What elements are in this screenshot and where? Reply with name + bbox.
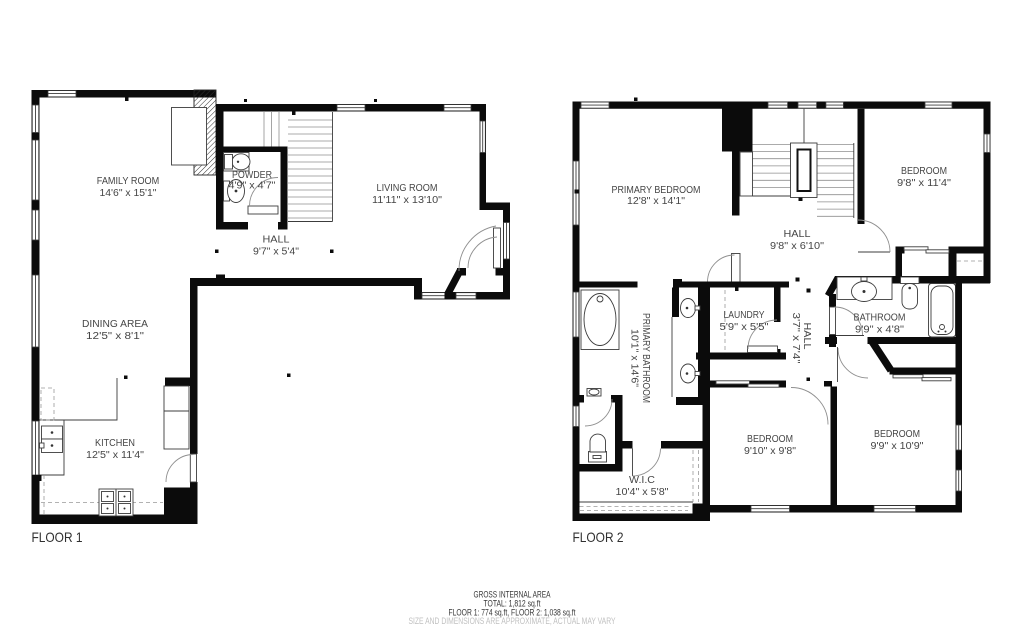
svg-text:HALL: HALL [784,229,811,240]
svg-text:12'5" x 8'1": 12'5" x 8'1" [86,331,145,342]
svg-text:12'5" x 11'4": 12'5" x 11'4" [86,450,144,461]
svg-text:FLOOR 2: FLOOR 2 [573,529,624,545]
svg-text:LIVING ROOM: LIVING ROOM [377,183,438,194]
svg-text:DINING AREA: DINING AREA [82,319,148,330]
svg-text:9'9" x 10'9": 9'9" x 10'9" [871,441,924,452]
svg-text:FLOOR 1: FLOOR 1 [32,529,83,545]
svg-text:9'10" x 9'8": 9'10" x 9'8" [744,446,796,457]
svg-text:9'8" x 6'10": 9'8" x 6'10" [770,241,824,252]
svg-text:HALL: HALL [801,323,812,350]
svg-text:11'11" x 13'10": 11'11" x 13'10" [372,195,442,206]
svg-text:FAMILY ROOM: FAMILY ROOM [97,176,160,187]
svg-text:5'9" x 5'5": 5'9" x 5'5" [720,322,769,333]
svg-text:LAUNDRY: LAUNDRY [724,310,765,321]
svg-text:HALL: HALL [263,235,290,246]
svg-text:9'9" x 4'8": 9'9" x 4'8" [855,325,904,336]
svg-text:KITCHEN: KITCHEN [95,438,135,449]
svg-text:SIZE AND DIMENSIONS ARE APPROX: SIZE AND DIMENSIONS ARE APPROXIMATE, ACT… [409,616,616,626]
svg-text:BEDROOM: BEDROOM [874,429,920,440]
svg-text:W.I.C: W.I.C [629,475,655,486]
svg-text:BATHROOM: BATHROOM [854,313,906,324]
svg-text:3'7" x 7'4": 3'7" x 7'4" [790,313,801,365]
svg-text:POWDER: POWDER [232,170,272,181]
svg-text:BEDROOM: BEDROOM [747,434,793,445]
svg-text:PRIMARY BATHROOM: PRIMARY BATHROOM [640,313,651,403]
svg-text:10'4" x 5'8": 10'4" x 5'8" [616,487,669,498]
svg-text:9'7" x 5'4": 9'7" x 5'4" [253,247,299,258]
svg-text:BEDROOM: BEDROOM [901,166,947,177]
svg-text:14'6" x 15'1": 14'6" x 15'1" [100,188,157,199]
svg-text:9'8" x 11'4": 9'8" x 11'4" [897,178,951,189]
svg-text:PRIMARY BEDROOM: PRIMARY BEDROOM [612,185,701,196]
svg-text:10'1" x 14'6": 10'1" x 14'6" [629,329,640,387]
svg-text:12'8" x 14'1": 12'8" x 14'1" [627,196,685,207]
svg-text:4'9" x 4'7": 4'9" x 4'7" [229,181,276,192]
